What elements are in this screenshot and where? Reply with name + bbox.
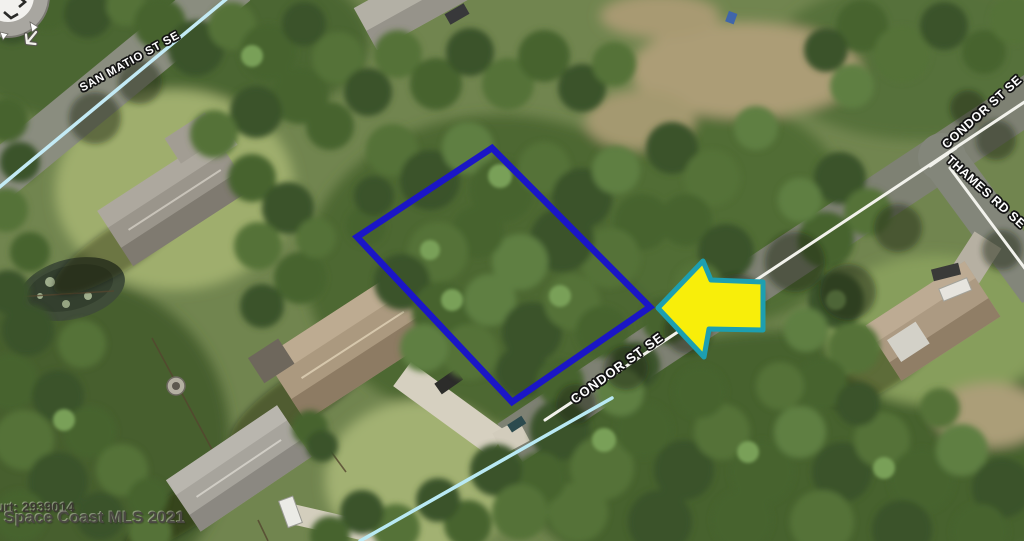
pointer-arrow: [658, 261, 763, 357]
parcel-outline: [357, 148, 650, 402]
compass-icon: [0, 0, 58, 58]
pan-southwest-arrow: [26, 32, 36, 44]
aerial-map-canvas[interactable]: SAN MATIO ST SE CONDOR ST SE CONDOR ST S…: [0, 0, 1024, 541]
map-pan-control[interactable]: [0, 0, 58, 58]
annotation-overlay: [0, 0, 1024, 541]
mls-credit-text: Space Coast MLS 2021: [4, 509, 185, 526]
